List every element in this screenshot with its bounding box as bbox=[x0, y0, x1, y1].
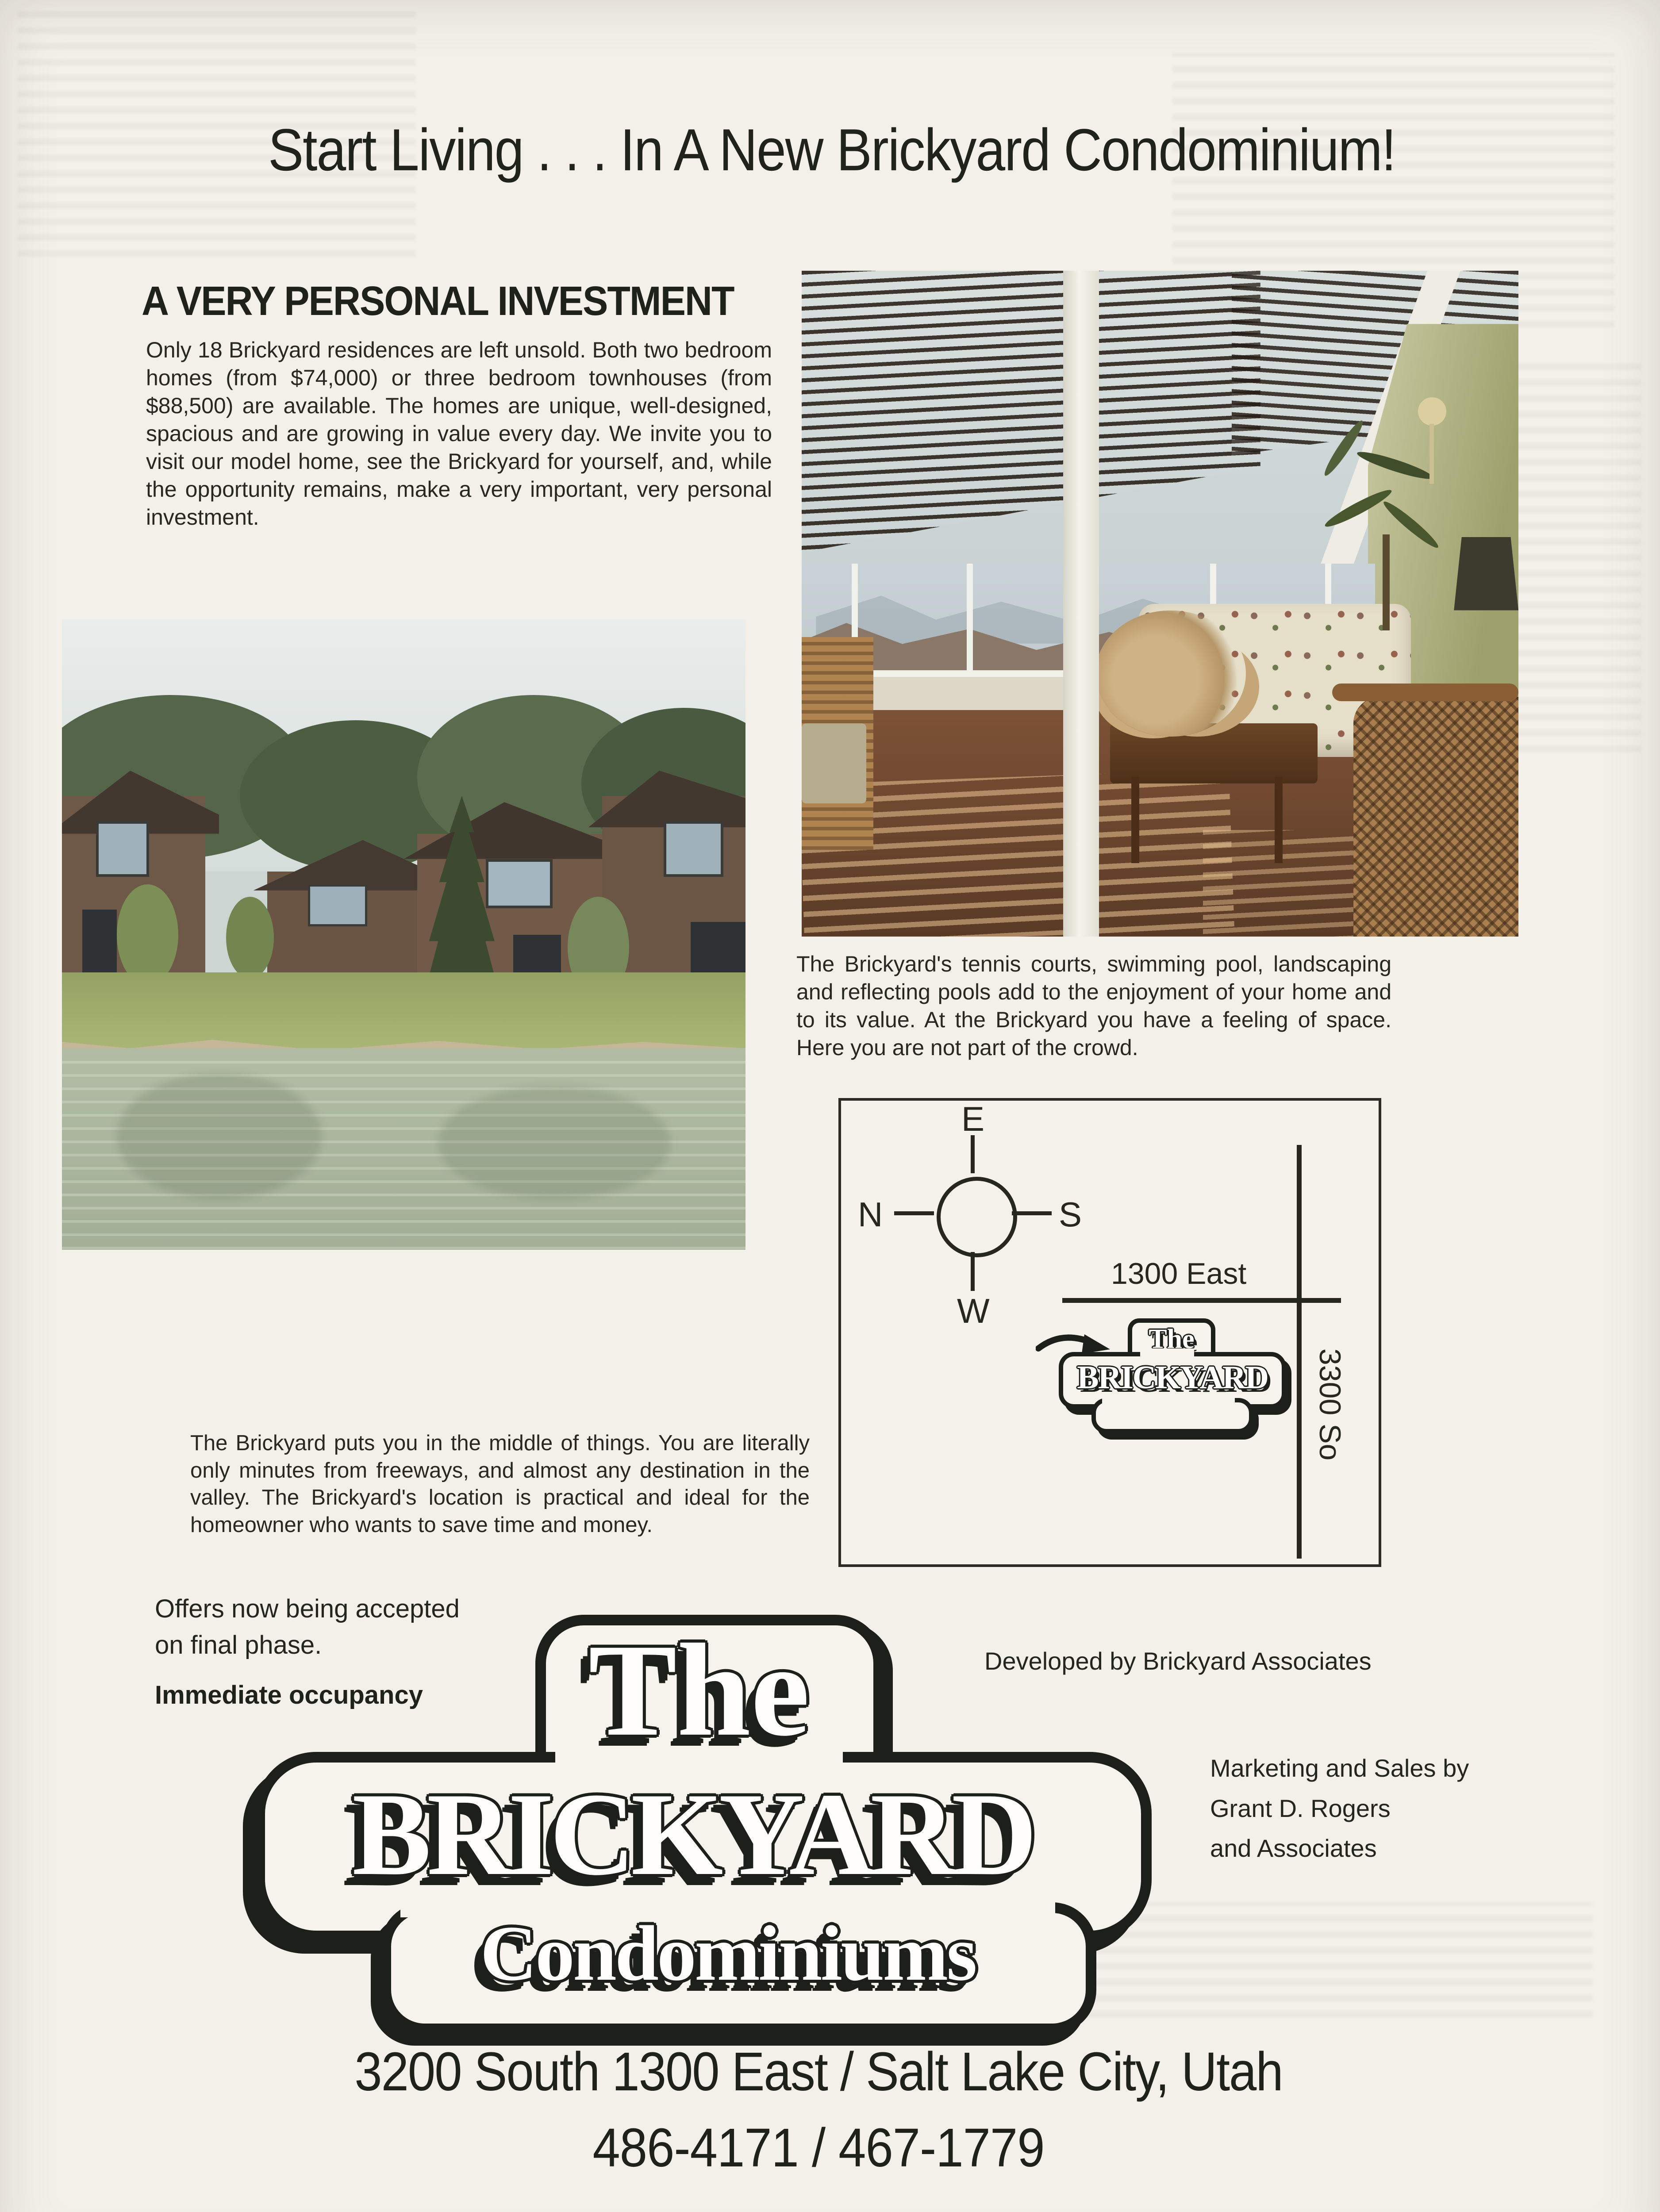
logo-condominiums-text: Condominiums bbox=[380, 1908, 1075, 1999]
logo-brickyard-wrap: BRICKYARD bbox=[254, 1766, 1130, 1902]
map-marker-junction-patch-2 bbox=[1102, 1393, 1235, 1404]
palm-frond bbox=[1355, 448, 1434, 483]
compass-arm-top bbox=[971, 1135, 975, 1173]
interior-dried-arrangement bbox=[1095, 611, 1246, 737]
compass-icon bbox=[937, 1177, 1017, 1257]
pond-reflection-left bbox=[117, 1073, 322, 1199]
offers-note: Offers now being accepted on final phase… bbox=[155, 1591, 460, 1664]
pond-reflection-right bbox=[438, 1086, 670, 1200]
investment-body: Only 18 Brickyard residences are left un… bbox=[146, 336, 772, 531]
compass-arm-bottom bbox=[971, 1252, 975, 1291]
marketing-line-3: and Associates bbox=[1210, 1828, 1469, 1869]
street-label-3300-so: 3300 So bbox=[1313, 1348, 1347, 1460]
logo-brickyard-text: BRICKYARD bbox=[254, 1766, 1130, 1902]
pond-house-left-window bbox=[96, 821, 149, 877]
magazine-ad-page: Start Living . . . In A New Brickyard Co… bbox=[0, 0, 1660, 2212]
street-label-1300-east: 1300 East bbox=[1111, 1256, 1246, 1291]
interior-wall-fan-handle bbox=[1429, 424, 1434, 484]
palm-frond bbox=[1321, 418, 1367, 479]
compass-label-east: E bbox=[961, 1099, 984, 1139]
pond-house-mid-right-window bbox=[486, 859, 553, 909]
compass-arm-left bbox=[894, 1211, 934, 1215]
map-marker-brickyard-text: BRICKYARD bbox=[1063, 1359, 1282, 1397]
offers-line-2: on final phase. bbox=[155, 1627, 460, 1663]
compass-label-north: N bbox=[858, 1194, 883, 1235]
interior-palm-plant bbox=[1303, 417, 1476, 630]
immediate-occupancy-note: Immediate occupancy bbox=[155, 1680, 423, 1710]
interior-coffee-table bbox=[1110, 723, 1318, 783]
offers-line-1: Offers now being accepted bbox=[155, 1591, 460, 1627]
interior-table-leg-right bbox=[1275, 777, 1283, 864]
interior-rattan-chair-arm bbox=[1332, 684, 1518, 701]
pond-small-tree bbox=[117, 884, 178, 985]
palm-trunk bbox=[1383, 534, 1390, 630]
interior-wall-fan-head bbox=[1418, 397, 1446, 426]
pond-courtyard-photo bbox=[62, 619, 745, 1250]
interior-sunroom-photo bbox=[802, 271, 1518, 937]
investment-heading: A VERY PERSONAL INVESTMENT bbox=[142, 278, 734, 325]
interior-lamp-shade bbox=[1454, 537, 1518, 611]
road-3300-south bbox=[1297, 1145, 1302, 1559]
logo-the-text: The bbox=[535, 1614, 863, 1767]
compass-arm-right bbox=[1012, 1211, 1052, 1215]
compass-label-south: S bbox=[1059, 1194, 1082, 1235]
pond-small-tree bbox=[226, 897, 274, 979]
photo-caption: The Brickyard's tennis courts, swimming … bbox=[796, 950, 1391, 1062]
footer-address: 3200 South 1300 East / Salt Lake City, U… bbox=[133, 2040, 1504, 2103]
logo-the-wrap: The bbox=[535, 1614, 863, 1767]
interior-table-leg-left bbox=[1131, 777, 1139, 864]
location-paragraph: The Brickyard puts you in the middle of … bbox=[190, 1430, 810, 1539]
logo-condominiums-wrap: Condominiums bbox=[380, 1908, 1075, 1999]
marketing-credit: Marketing and Sales by Grant D. Rogers a… bbox=[1210, 1748, 1469, 1869]
marketing-line-1: Marketing and Sales by bbox=[1210, 1748, 1469, 1789]
page-headline: Start Living . . . In A New Brickyard Co… bbox=[106, 116, 1557, 184]
interior-mullion-2 bbox=[967, 564, 973, 677]
palm-frond bbox=[1322, 485, 1394, 531]
compass-label-west: W bbox=[957, 1291, 990, 1331]
palm-frond bbox=[1380, 498, 1441, 552]
footer-phone: 486-4171 / 467-1779 bbox=[133, 2116, 1504, 2179]
interior-chair-left-cushion bbox=[802, 723, 866, 803]
marketing-line-2: Grant D. Rogers bbox=[1210, 1789, 1469, 1829]
pond-house-mid-left-window bbox=[308, 884, 367, 927]
pond-house-right-window bbox=[664, 821, 724, 877]
developed-by-credit: Developed by Brickyard Associates bbox=[984, 1647, 1372, 1675]
interior-support-column bbox=[1063, 271, 1099, 937]
location-map: E N S W 1300 East 3300 So The BRICKYARD bbox=[838, 1098, 1381, 1567]
interior-rattan-chair-right bbox=[1353, 697, 1518, 937]
map-marker-junction-patch bbox=[1140, 1348, 1194, 1362]
